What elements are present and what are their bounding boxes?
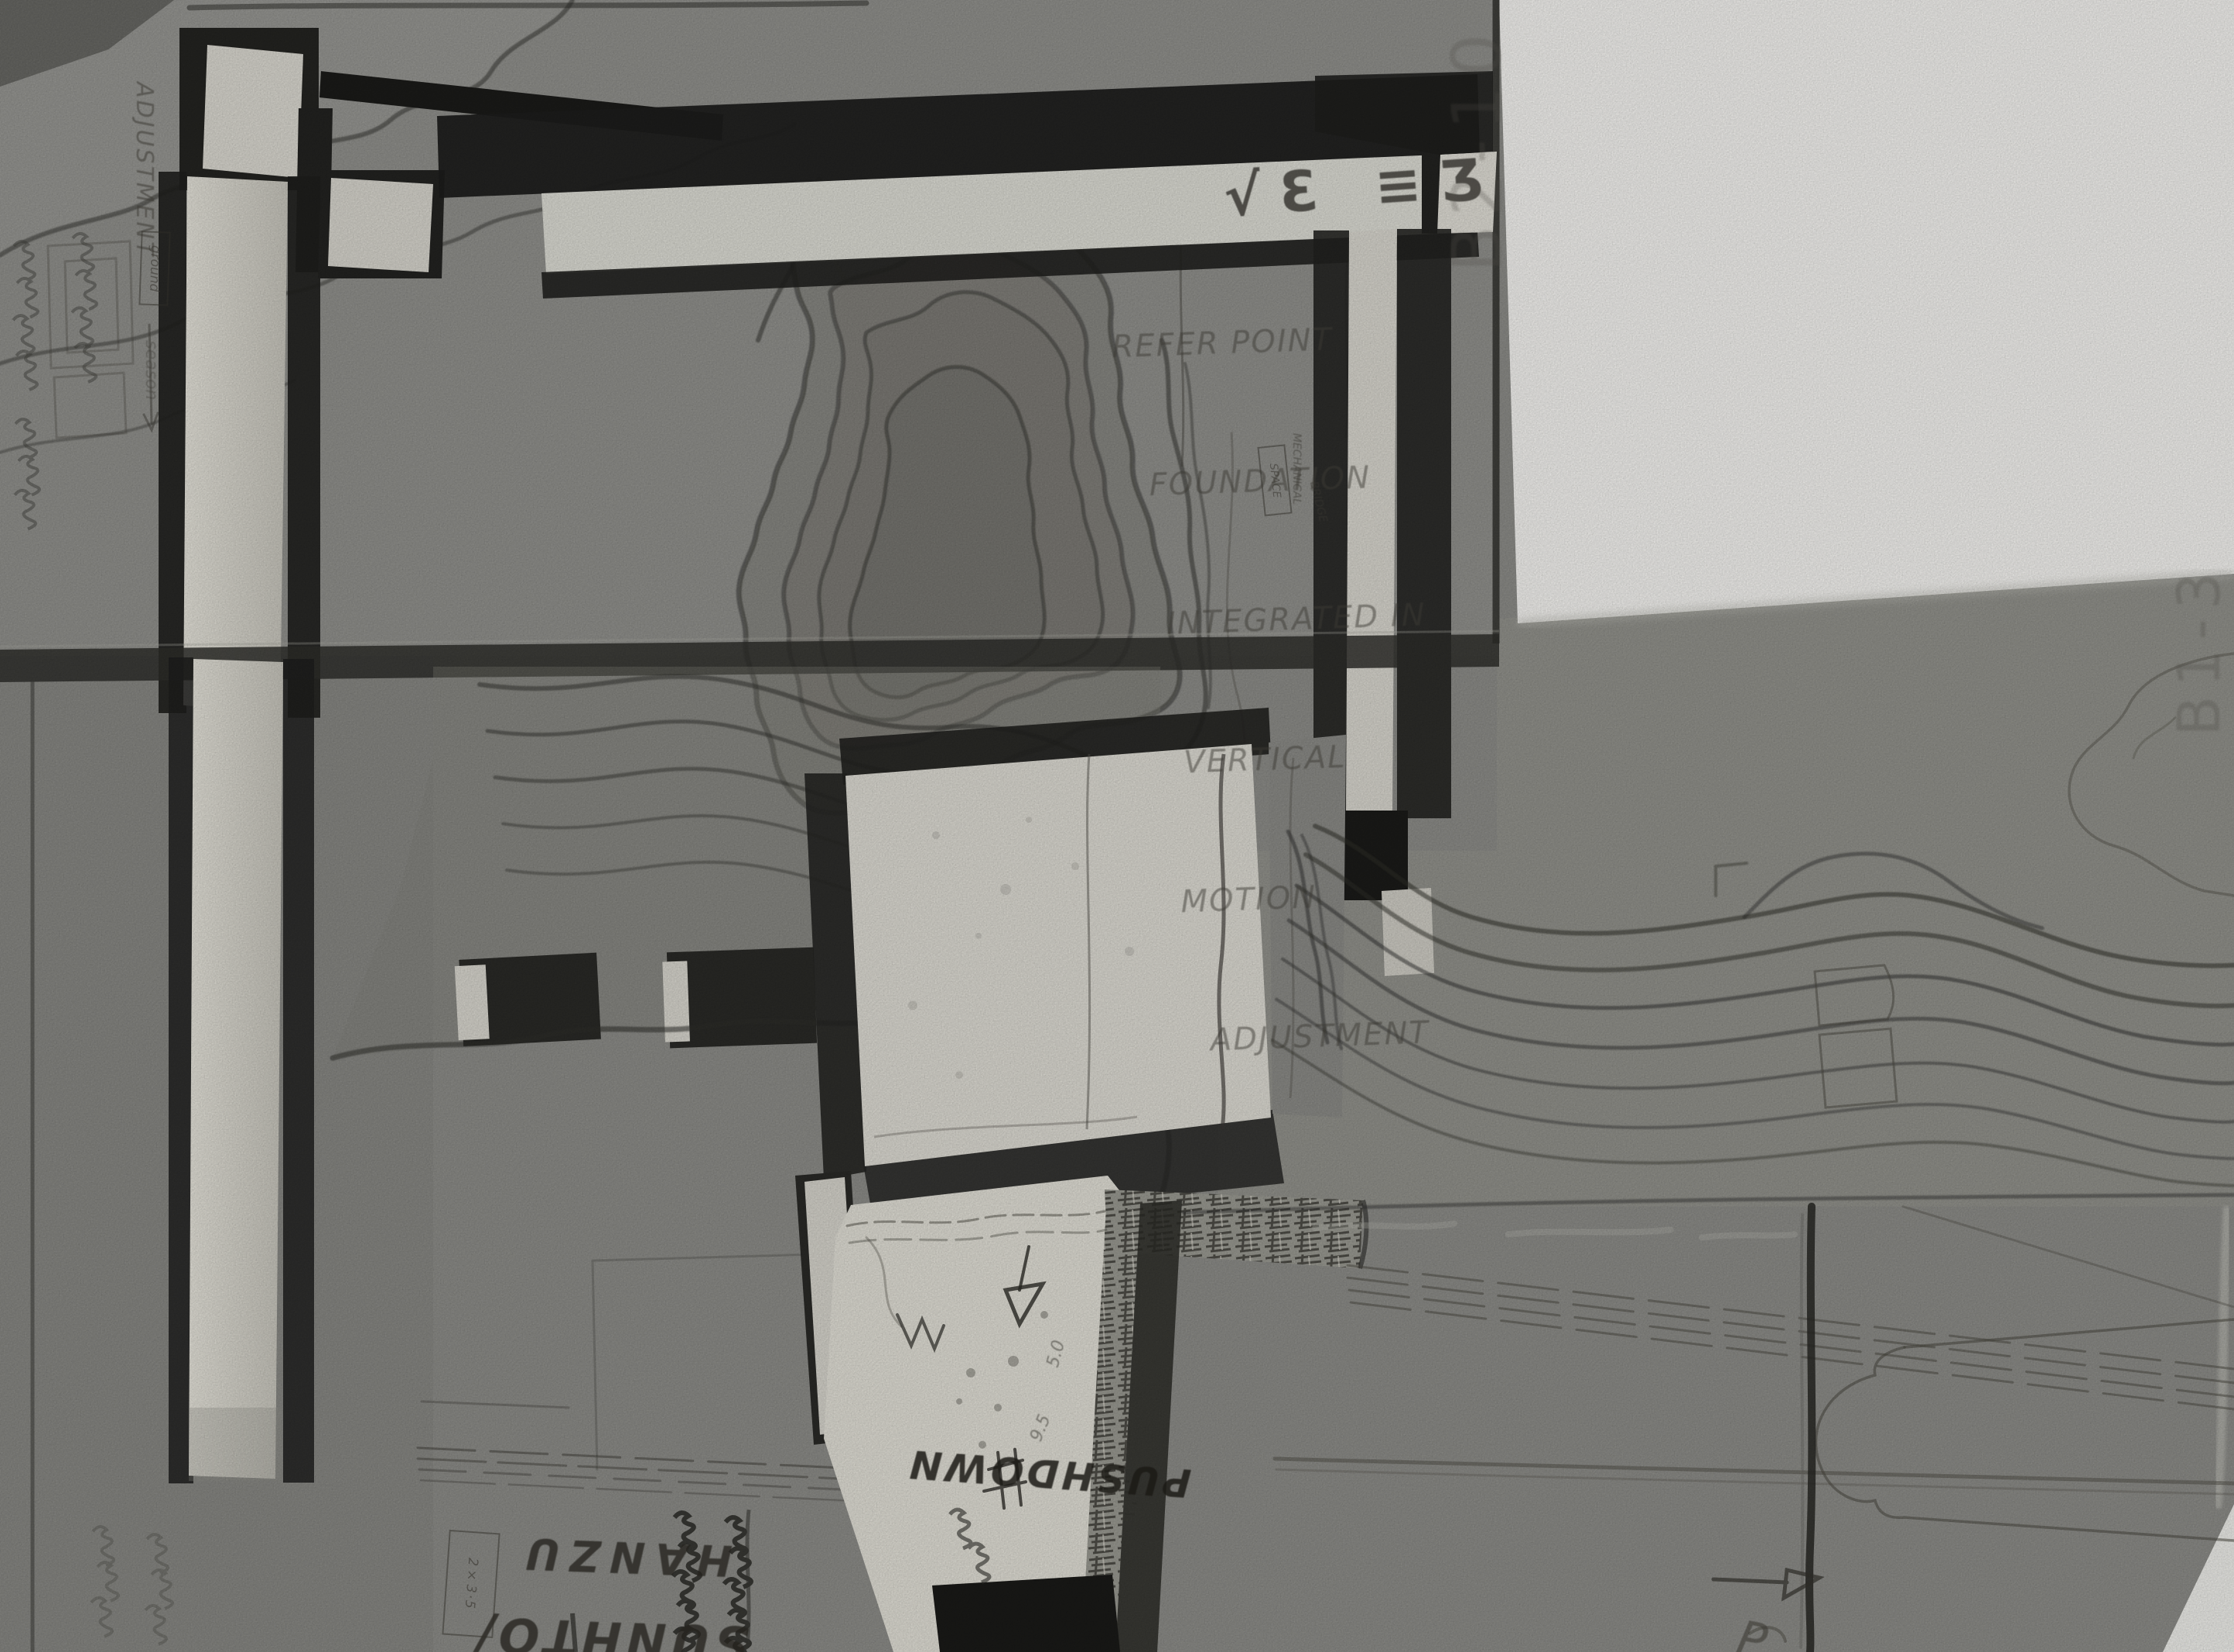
model-artwork: [0, 0, 2234, 1652]
film-grain: [0, 0, 2234, 1652]
model-photo: REFER POINT FOUNDATION INTEGRATED IN VER…: [0, 0, 2234, 1652]
